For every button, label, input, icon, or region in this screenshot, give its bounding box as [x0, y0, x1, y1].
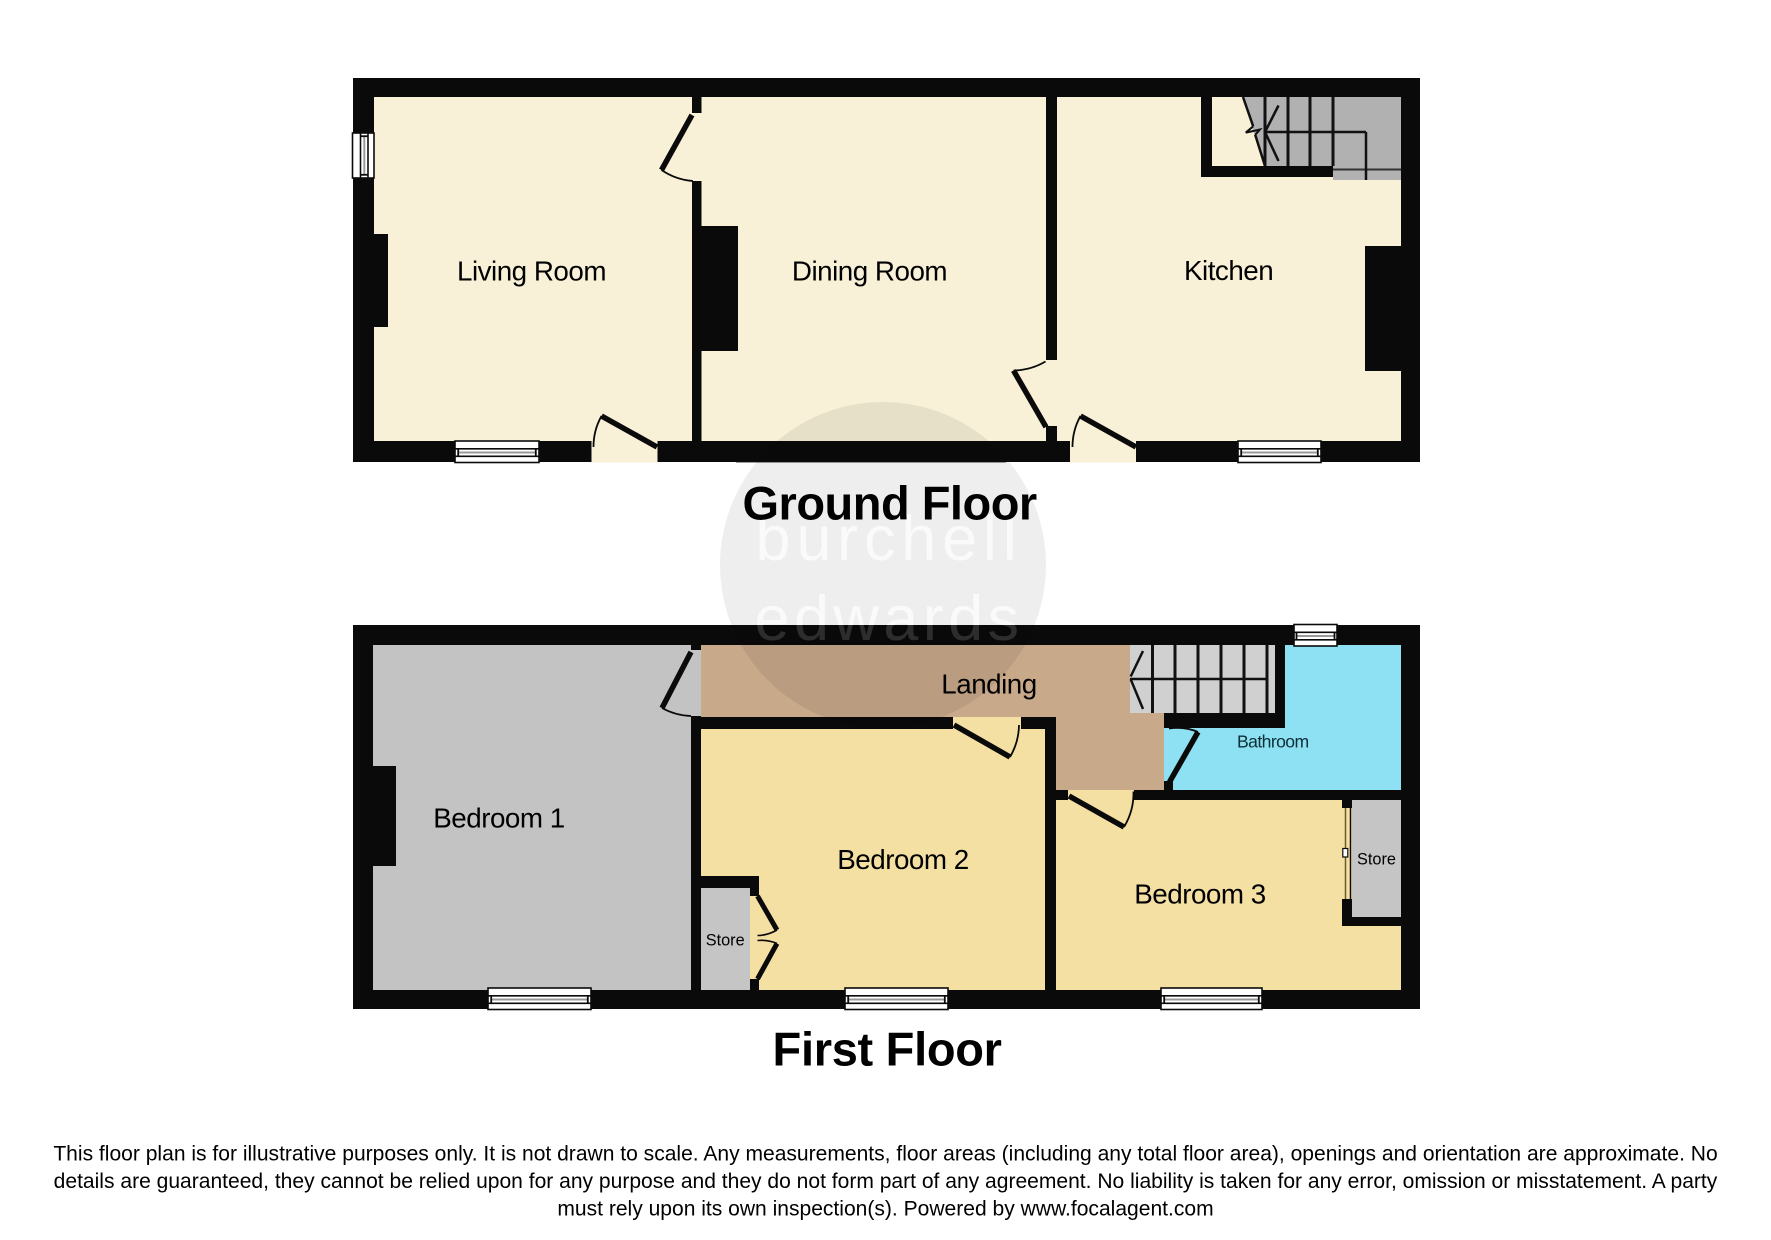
svg-text:must rely upon its own inspect: must rely upon its own inspection(s). Po…	[557, 1198, 1213, 1221]
svg-text:Kitchen: Kitchen	[1184, 255, 1273, 286]
svg-text:This floor plan is for illustr: This floor plan is for illustrative purp…	[53, 1143, 1717, 1166]
svg-text:details are guaranteed, they c: details are guaranteed, they cannot be r…	[54, 1170, 1718, 1193]
svg-text:Bedroom 2: Bedroom 2	[837, 844, 969, 875]
svg-text:Dining Room: Dining Room	[792, 255, 947, 286]
svg-text:Bathroom: Bathroom	[1237, 731, 1308, 751]
svg-text:Bedroom 1: Bedroom 1	[433, 802, 565, 833]
svg-text:Living Room: Living Room	[457, 255, 606, 286]
svg-text:Ground Floor: Ground Floor	[742, 477, 1036, 530]
svg-text:Store: Store	[1357, 850, 1396, 868]
svg-text:First Floor: First Floor	[773, 1023, 1002, 1076]
svg-text:Store: Store	[706, 932, 745, 950]
svg-text:Bedroom 3: Bedroom 3	[1134, 879, 1266, 910]
